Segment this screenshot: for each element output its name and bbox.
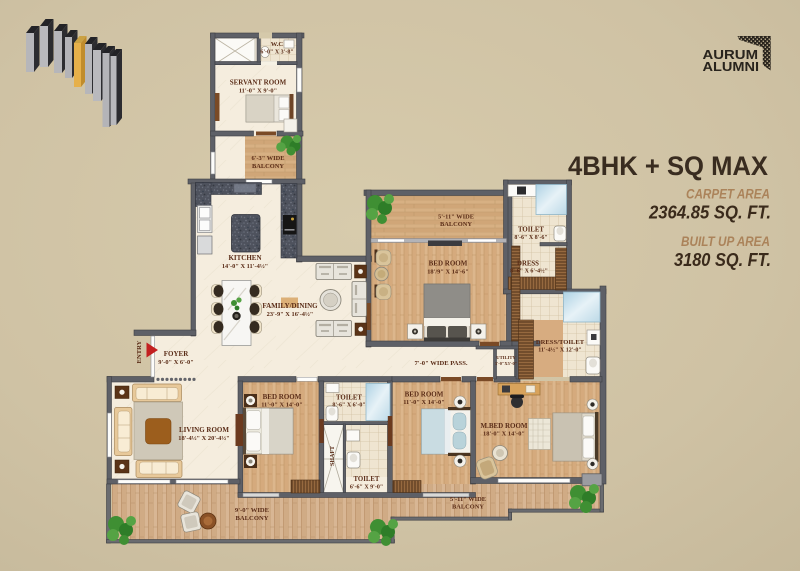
svg-text:8'-6" X 6'-0": 8'-6" X 6'-0" — [332, 403, 365, 409]
svg-text:BUILT UP AREA: BUILT UP AREA — [681, 234, 770, 249]
svg-text:W.C: W.C — [271, 41, 284, 48]
svg-text:8'-6" X 8'-6": 8'-6" X 8'-6" — [514, 235, 547, 241]
svg-text:3'-0"X5'-0": 3'-0"X5'-0" — [495, 361, 517, 366]
svg-text:FAMILY/DINING: FAMILY/DINING — [262, 302, 318, 310]
svg-text:2364.85 SQ. FT.: 2364.85 SQ. FT. — [648, 203, 771, 223]
svg-text:3180 SQ. FT.: 3180 SQ. FT. — [674, 250, 771, 270]
svg-text:7'-0" WIDE PASS.: 7'-0" WIDE PASS. — [414, 360, 467, 367]
svg-text:BALCONY: BALCONY — [452, 504, 484, 511]
svg-text:ALUMNI: ALUMNI — [703, 59, 760, 74]
svg-text:UTILITY: UTILITY — [496, 355, 516, 360]
svg-text:8'-6" X 6'-4½": 8'-6" X 6'-4½" — [510, 268, 548, 275]
svg-text:5'-11" WIDE: 5'-11" WIDE — [438, 214, 474, 221]
svg-text:9'-0" X 6'-0": 9'-0" X 6'-0" — [158, 359, 194, 366]
svg-text:BALCONY: BALCONY — [440, 221, 472, 228]
svg-text:DRESS: DRESS — [517, 261, 539, 268]
svg-text:11'-0" X 14'-0": 11'-0" X 14'-0" — [261, 402, 303, 409]
svg-text:6'-0" X 3'-8": 6'-0" X 3'-8" — [260, 50, 293, 56]
svg-text:5'-11" WIDE: 5'-11" WIDE — [450, 496, 486, 503]
svg-text:BED ROOM: BED ROOM — [263, 393, 302, 401]
svg-text:6'-3" WIDE: 6'-3" WIDE — [251, 155, 284, 162]
svg-text:18'-4½" X 20'-4½": 18'-4½" X 20'-4½" — [178, 435, 229, 442]
svg-text:TOILET: TOILET — [354, 476, 380, 483]
svg-text:11'-0" X 14'-0": 11'-0" X 14'-0" — [403, 399, 445, 406]
svg-text:6'-6" X 9'-0": 6'-6" X 9'-0" — [350, 485, 383, 491]
svg-text:TOILET: TOILET — [336, 395, 362, 402]
svg-text:14'-0" X 11'-4½": 14'-0" X 11'-4½" — [222, 263, 268, 270]
svg-text:DRESS/TOILET: DRESS/TOILET — [536, 339, 585, 346]
svg-text:18'-0" X 14'-0": 18'-0" X 14'-0" — [483, 431, 525, 438]
svg-text:KITCHEN: KITCHEN — [228, 254, 261, 262]
svg-text:9'-0" WIDE: 9'-0" WIDE — [235, 507, 270, 514]
svg-text:LIVING ROOM: LIVING ROOM — [179, 426, 229, 434]
svg-text:SERVANT ROOM: SERVANT ROOM — [230, 79, 287, 87]
svg-text:11'-4½" X 12'-0": 11'-4½" X 12'-0" — [538, 347, 582, 354]
svg-text:18'/9" X 14'-6": 18'/9" X 14'-6" — [427, 269, 469, 276]
svg-text:SHAFT: SHAFT — [330, 446, 336, 466]
svg-text:CARPET AREA: CARPET AREA — [686, 187, 770, 202]
svg-text:BALCONY: BALCONY — [252, 163, 284, 170]
svg-text:BED ROOM: BED ROOM — [429, 260, 468, 268]
svg-text:4BHK + SQ MAX: 4BHK + SQ MAX — [568, 151, 768, 181]
svg-text:BED ROOM: BED ROOM — [405, 391, 444, 399]
svg-text:TOILET: TOILET — [518, 227, 544, 234]
svg-text:M.BED ROOM: M.BED ROOM — [480, 422, 527, 430]
svg-text:ENTRY: ENTRY — [136, 340, 143, 363]
svg-text:BALCONY: BALCONY — [236, 515, 269, 522]
svg-text:23'-9" X 16'-4½": 23'-9" X 16'-4½" — [267, 311, 314, 318]
svg-text:FOYER: FOYER — [164, 350, 189, 358]
svg-text:11'-0" X 9'-0": 11'-0" X 9'-0" — [239, 88, 277, 95]
